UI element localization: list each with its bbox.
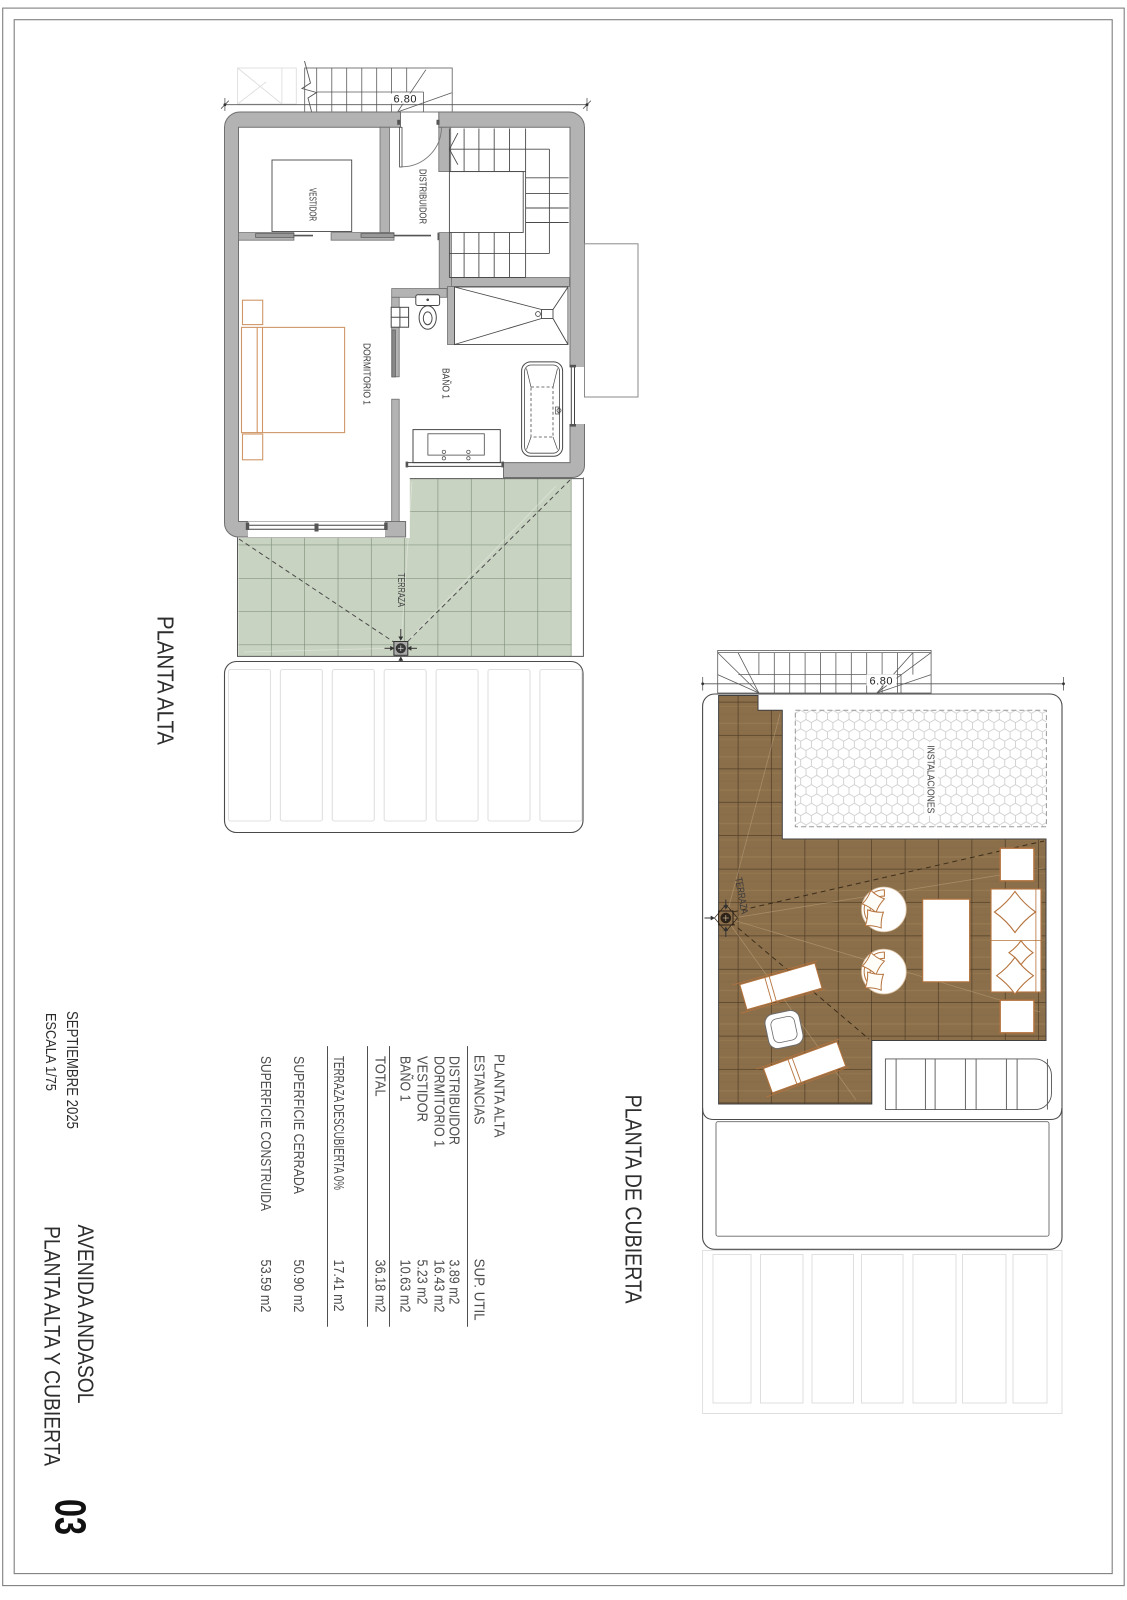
svg-text:03: 03 — [46, 1499, 95, 1535]
svg-text:36.18 m2: 36.18 m2 — [372, 1260, 388, 1313]
svg-text:BAÑO 1: BAÑO 1 — [397, 1056, 413, 1102]
svg-text:VESTIDOR: VESTIDOR — [307, 188, 318, 221]
svg-text:AVENIDA ANDASOL: AVENIDA ANDASOL — [73, 1225, 98, 1404]
svg-text:6.80: 6.80 — [870, 676, 893, 688]
svg-text:SEPTIEMBRE 2025: SEPTIEMBRE 2025 — [63, 1011, 80, 1129]
svg-text:DISTRIBUIDOR: DISTRIBUIDOR — [446, 1056, 462, 1145]
svg-text:53.59 m2: 53.59 m2 — [258, 1260, 274, 1313]
svg-text:16.43 m2: 16.43 m2 — [431, 1260, 447, 1313]
svg-text:10.63 m2: 10.63 m2 — [397, 1260, 413, 1313]
svg-text:ESTANCIAS: ESTANCIAS — [471, 1055, 487, 1124]
svg-text:PLANTA ALTA: PLANTA ALTA — [152, 616, 177, 745]
svg-text:BAÑO 1: BAÑO 1 — [439, 368, 451, 399]
svg-text:VESTIDOR: VESTIDOR — [414, 1056, 430, 1122]
svg-text:SUP. UTIL: SUP. UTIL — [471, 1259, 487, 1321]
svg-text:TERRAZA: TERRAZA — [395, 573, 407, 608]
svg-text:3.89 m2: 3.89 m2 — [446, 1260, 462, 1305]
svg-text:TOTAL: TOTAL — [372, 1056, 388, 1097]
svg-text:PLANTA DE CUBIERTA: PLANTA DE CUBIERTA — [620, 1095, 645, 1304]
svg-text:PLANTA ALTA: PLANTA ALTA — [491, 1054, 507, 1138]
svg-text:DORMITORIO 1: DORMITORIO 1 — [360, 343, 372, 405]
svg-text:DISTRIBUIDOR: DISTRIBUIDOR — [417, 169, 428, 224]
svg-text:PLANTA ALTA Y CUBIERTA: PLANTA ALTA Y CUBIERTA — [39, 1226, 64, 1466]
svg-text:ESCALA 1/75: ESCALA 1/75 — [43, 1013, 60, 1091]
svg-text:6.80: 6.80 — [394, 94, 417, 106]
svg-text:SUPERFICIE CONSTRUIDA: SUPERFICIE CONSTRUIDA — [258, 1056, 274, 1212]
svg-text:INSTALACIONES: INSTALACIONES — [924, 745, 936, 813]
svg-text:TERRAZA DESCUBIERTA 0%: TERRAZA DESCUBIERTA 0% — [331, 1056, 347, 1190]
svg-text:DORMITORIO 1: DORMITORIO 1 — [431, 1056, 447, 1147]
svg-text:5.23 m2: 5.23 m2 — [414, 1260, 430, 1305]
svg-text:17.41 m2: 17.41 m2 — [331, 1260, 347, 1312]
svg-text:50.90 m2: 50.90 m2 — [291, 1260, 307, 1313]
svg-text:SUPERFICIE CERRADA: SUPERFICIE CERRADA — [291, 1056, 307, 1195]
